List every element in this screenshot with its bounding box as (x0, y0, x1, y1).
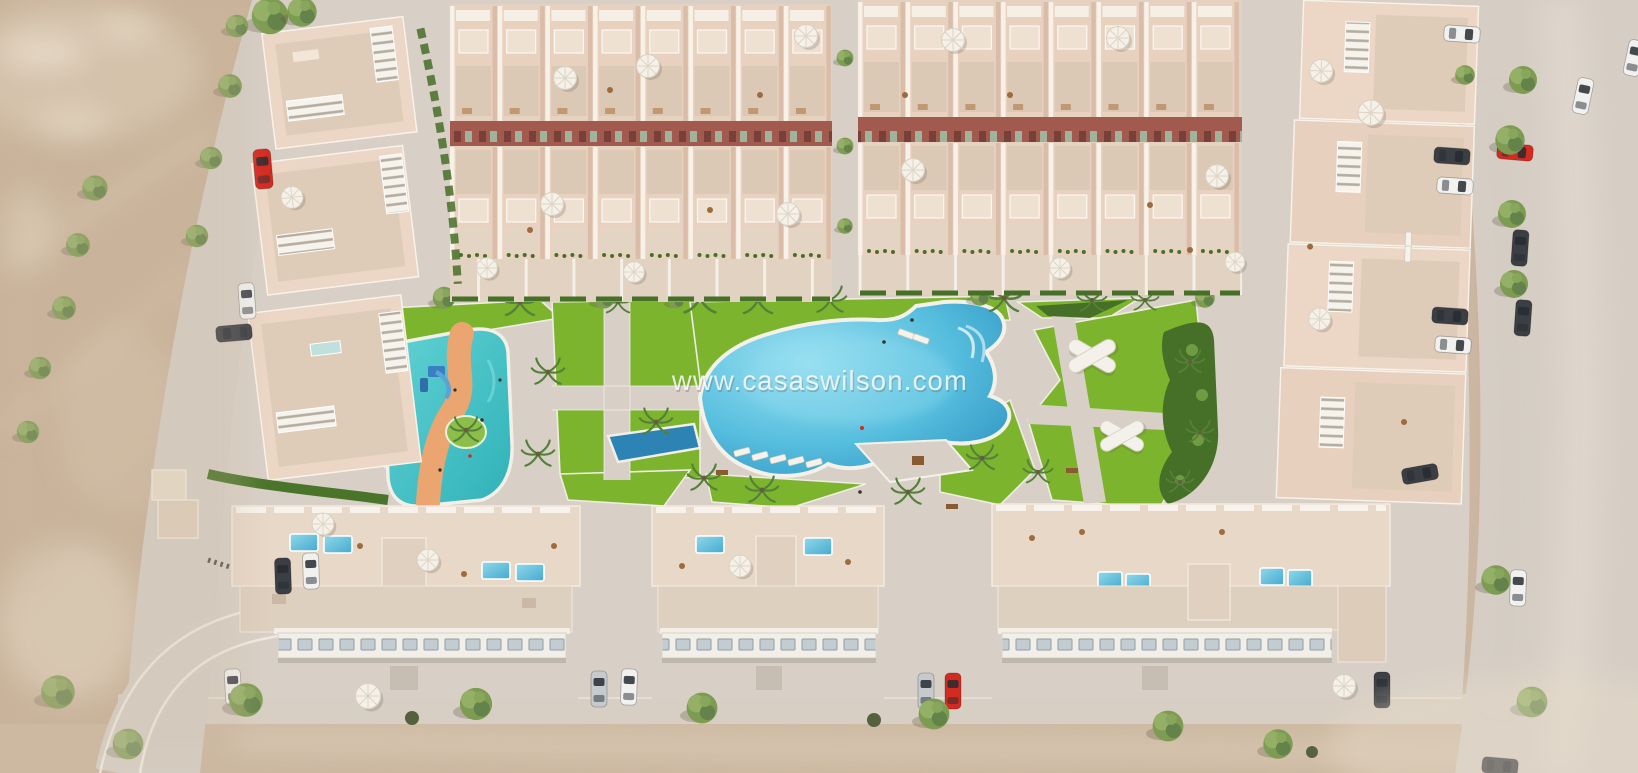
apartment-block (252, 146, 419, 296)
window-facade (1002, 633, 1332, 658)
car (302, 553, 319, 590)
car (253, 149, 274, 190)
watermark-text: www.casaswilson.com (671, 365, 968, 396)
scene-svg: www.casaswilson.com www.casaswilson.com (0, 0, 1638, 773)
car (215, 323, 252, 342)
entrance (1142, 666, 1168, 690)
apartment-block-bottom-middle (652, 506, 884, 699)
car (945, 673, 961, 709)
brick-facade-band (858, 117, 1242, 142)
house (1276, 368, 1465, 504)
car (274, 558, 291, 595)
car (1431, 307, 1468, 325)
car (1514, 299, 1532, 336)
car (1433, 147, 1470, 165)
apartment-block (248, 295, 421, 481)
pool-kiosk (912, 456, 924, 465)
car (1436, 177, 1473, 195)
watermark: www.casaswilson.com www.casaswilson.com (671, 365, 969, 398)
townhouse-block-top-right (858, 0, 1247, 295)
rooftop-pool (324, 536, 352, 553)
car (1509, 570, 1526, 607)
car (1511, 229, 1529, 266)
aerial-render: www.casaswilson.com www.casaswilson.com (0, 0, 1638, 773)
entrance (390, 666, 418, 690)
townhouse-block-top-left (450, 4, 832, 302)
window-facade (662, 633, 876, 658)
car (591, 671, 607, 707)
brick-facade-band (450, 121, 832, 146)
window-facade (278, 633, 566, 658)
rooftop-pool (696, 536, 724, 553)
rooftop-pool (1288, 570, 1312, 587)
car (1374, 672, 1390, 708)
car (620, 669, 637, 706)
house-column-right (1276, 0, 1478, 504)
apartment-block-bottom-left (232, 506, 580, 699)
apartment-block-bottom-right (992, 504, 1390, 700)
rooftop-pool (290, 534, 318, 551)
rooftop-pool (804, 538, 832, 555)
apartment-block (262, 17, 417, 149)
entrance (756, 666, 782, 690)
rooftop-pool (1260, 568, 1284, 585)
car (238, 282, 256, 319)
rooftop-pool (482, 562, 510, 579)
car (1434, 336, 1471, 354)
car (1481, 756, 1518, 773)
rooftop-pool (516, 564, 544, 581)
car (1443, 25, 1480, 43)
